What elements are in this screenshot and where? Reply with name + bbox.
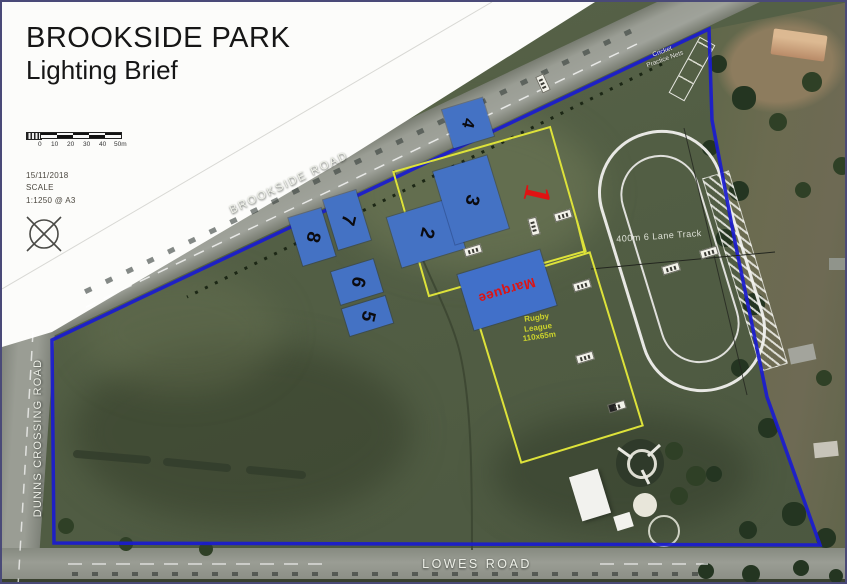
marquee-label: Marquee — [477, 274, 538, 306]
area-2-label: 2 — [414, 225, 438, 240]
road-label-lowes: LOWES ROAD — [347, 557, 607, 571]
area-7-label: 7 — [335, 212, 359, 227]
scale-tick: 0 — [38, 141, 42, 148]
dunns-centerline — [18, 332, 33, 584]
title-line1: BROOKSIDE PARK — [26, 22, 290, 55]
scale-heading: SCALE — [26, 182, 76, 194]
area-5-label: 5 — [356, 308, 380, 323]
page-title: BROOKSIDE PARK Lighting Brief — [26, 22, 290, 86]
road-label-dunns-crossing: DUNNS CROSSING ROAD — [32, 343, 44, 533]
scale-tick: 30 — [83, 141, 90, 148]
scale-tick: 20 — [67, 141, 74, 148]
area-6-label: 6 — [345, 274, 369, 289]
drawing-date: 15/11/2018 — [26, 170, 76, 182]
title-line2: Lighting Brief — [26, 55, 290, 86]
area-4-label: 4 — [457, 116, 479, 130]
scale-bar-row-bottom — [40, 135, 122, 139]
scale-tick: 50m — [114, 141, 127, 148]
plan-linework — [2, 2, 847, 584]
scale-bar: 0 10 20 30 40 50m — [26, 132, 130, 152]
track-cross-dimension-line — [591, 252, 775, 269]
playground-spokes — [618, 445, 660, 484]
scale-tick: 10 — [51, 141, 58, 148]
berm-mounds — [77, 454, 302, 475]
drawing-info: 15/11/2018 SCALE 1:1250 @ A3 — [26, 170, 76, 207]
area-8-label: 8 — [300, 229, 324, 244]
scale-ratio: 1:1250 @ A3 — [26, 195, 76, 207]
north-symbol-icon — [20, 210, 68, 258]
area-3-label: 3 — [459, 192, 483, 207]
lighting-brief-plan: 2 3 4 5 6 7 8 Marquee 1 BROOKSIDE ROAD D… — [0, 0, 847, 584]
scale-tick: 40 — [99, 141, 106, 148]
